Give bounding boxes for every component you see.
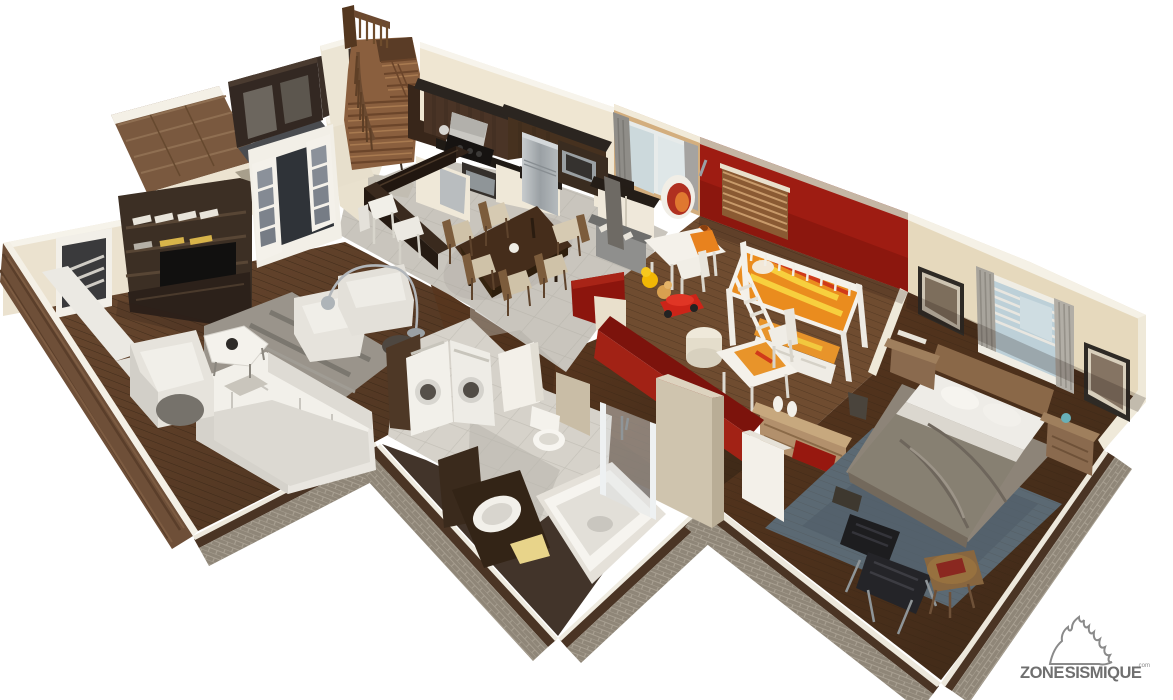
svg-text:.com: .com [1137, 663, 1150, 669]
svg-text:ZONE SISMIQUE: ZONE SISMIQUE [1020, 664, 1142, 682]
